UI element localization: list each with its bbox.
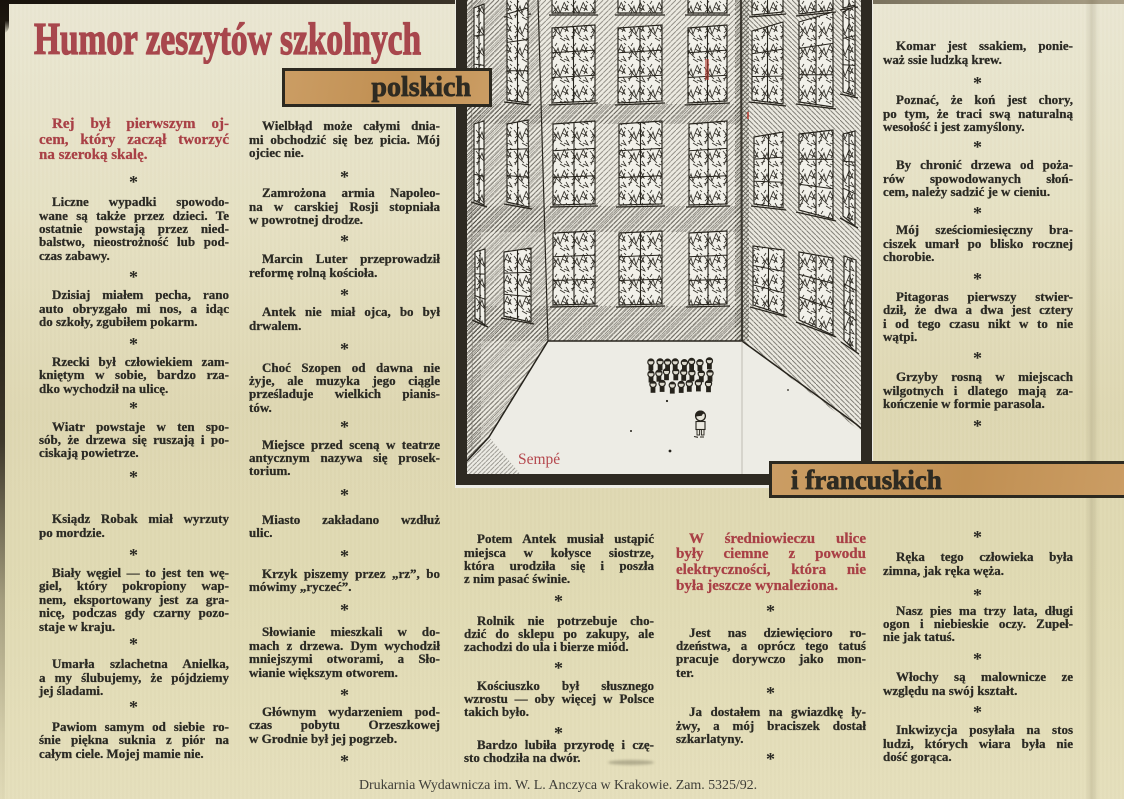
svg-text:Sempé: Sempé — [518, 451, 560, 468]
